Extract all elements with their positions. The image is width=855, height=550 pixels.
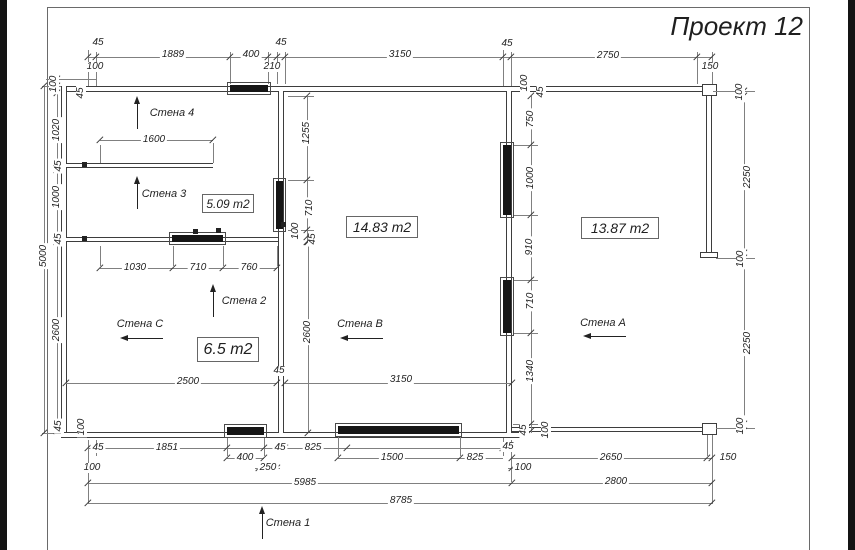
dim-label: 2500: [175, 377, 201, 387]
direction-arrow-shaft: [127, 338, 163, 339]
wall: [66, 163, 213, 168]
room-area-label: 5.09 m2: [202, 194, 254, 213]
dim-label: 45: [90, 443, 105, 453]
dim-line: [100, 246, 101, 266]
dim-line: [66, 383, 277, 384]
dim-label: 400: [241, 50, 262, 60]
wall-direction-label: Стена C: [117, 318, 163, 330]
dim-label: 2800: [603, 477, 629, 487]
dim-label: 45: [54, 418, 64, 433]
dim-label: 100: [77, 417, 87, 438]
dim-label: 45: [308, 231, 318, 246]
dim-label: 910: [525, 237, 535, 258]
dim-label: 150: [718, 453, 739, 463]
dim-line: [307, 96, 308, 242]
corner-post: [702, 423, 717, 435]
dim-label: 100: [49, 74, 59, 95]
dim-label: 825: [465, 453, 486, 463]
dim-label: 2650: [598, 453, 624, 463]
dim-label: 8785: [388, 496, 414, 506]
dim-line: [513, 215, 538, 216]
direction-arrow-shaft: [213, 291, 214, 317]
dim-label: 2750: [595, 51, 621, 61]
joint-notch: [281, 222, 286, 227]
window-symbol: [230, 85, 268, 92]
dim-label: 3150: [388, 375, 414, 385]
dim-label: 2600: [303, 319, 313, 345]
dim-line: [513, 145, 538, 146]
dim-label: 45: [54, 231, 64, 246]
dim-label: 100: [82, 463, 103, 473]
dim-line: [338, 436, 339, 456]
wall-direction-label: Стена B: [337, 318, 383, 330]
wall-direction-label: Стена A: [580, 317, 626, 329]
dim-label: 100: [513, 463, 534, 473]
dim-label: 1889: [160, 50, 186, 60]
dim-line: [288, 96, 314, 97]
dim-label: 1851: [154, 443, 180, 453]
direction-arrow-shaft: [262, 513, 263, 539]
dim-label: 250: [258, 463, 279, 473]
corner-post: [702, 84, 717, 96]
screenshot-root: Проект 12 451889400453150452750100210150…: [0, 0, 855, 550]
dim-label: 45: [76, 85, 86, 100]
dim-line: [460, 436, 461, 456]
dim-line: [513, 280, 538, 281]
dim-line: [288, 180, 314, 181]
wall: [706, 96, 712, 258]
dim-label: 1030: [122, 263, 148, 273]
dim-line: [100, 145, 101, 163]
dim-label: 45: [536, 84, 546, 99]
dim-label: 210: [262, 62, 283, 72]
dim-line: [173, 246, 174, 266]
dim-line: [213, 143, 214, 163]
dim-label: 1340: [526, 358, 536, 384]
wall-direction-label: Стена 1: [266, 517, 311, 529]
dim-label: 100: [520, 73, 530, 94]
wall-direction-label: Стена 4: [150, 107, 195, 119]
dim-label: 100: [736, 416, 746, 437]
window-symbol: [172, 235, 223, 242]
dim-label: 45: [273, 38, 288, 48]
direction-arrow-shaft: [590, 336, 626, 337]
dim-line: [513, 333, 538, 334]
room-area-label: 13.87 m2: [581, 217, 659, 239]
dim-tick: [708, 499, 715, 506]
dim-label: 45: [499, 39, 514, 49]
direction-arrow-shaft: [347, 338, 383, 339]
dim-line: [707, 435, 708, 456]
dim-label: 710: [188, 263, 209, 273]
dim-label: 5985: [292, 478, 318, 488]
direction-arrow-shaft: [137, 183, 138, 209]
room-area-label: 14.83 m2: [346, 216, 418, 238]
dim-label: 100: [291, 221, 301, 242]
joint-notch: [216, 228, 221, 233]
dim-tick: [260, 454, 267, 461]
window-symbol: [338, 426, 459, 434]
direction-arrow-shaft: [137, 103, 138, 129]
dim-label: 750: [526, 109, 536, 130]
dim-label: 2250: [743, 330, 753, 356]
dim-label: 100: [735, 82, 745, 103]
joint-notch: [82, 162, 87, 167]
dim-label: 2250: [743, 164, 753, 190]
dim-label: 45: [90, 38, 105, 48]
wall-direction-label: Стена 2: [222, 295, 267, 307]
dim-label: 825: [303, 443, 324, 453]
dim-label: 710: [305, 198, 315, 219]
wall-direction-label: Стена 3: [142, 188, 187, 200]
dim-label: 5000: [39, 243, 49, 269]
wall: [61, 86, 712, 92]
dim-label: 45: [519, 422, 529, 437]
dim-label: 100: [85, 62, 106, 72]
window-symbol: [227, 427, 264, 435]
window-symbol: [503, 145, 511, 215]
window-symbol: [503, 280, 511, 333]
dim-label: 1000: [52, 184, 62, 210]
dim-label: 1000: [526, 165, 536, 191]
dim-label: 1255: [302, 120, 312, 146]
dim-label: 45: [271, 366, 286, 376]
dim-label: 100: [736, 249, 746, 270]
floor-plan: 4518894004531504527501002101501004510204…: [0, 0, 855, 550]
dim-label: 400: [235, 453, 256, 463]
dim-label: 1500: [379, 453, 405, 463]
dim-line: [88, 448, 512, 449]
dim-label: 3150: [387, 50, 413, 60]
dim-line: [277, 246, 278, 266]
joint-notch: [82, 236, 87, 241]
dim-label: 760: [239, 263, 260, 273]
dim-label: 1600: [141, 135, 167, 145]
dim-line: [712, 435, 713, 504]
room-area-label: 6.5 m2: [197, 337, 259, 362]
dim-label: 1020: [52, 117, 62, 143]
dim-label: 710: [526, 291, 536, 312]
dim-label: 150: [700, 62, 721, 72]
dim-label: 2600: [52, 317, 62, 343]
dim-label: 45: [54, 158, 64, 173]
dim-line: [223, 246, 224, 266]
joint-notch: [193, 229, 198, 234]
dim-label: 45: [500, 442, 515, 452]
dim-label: 100: [541, 420, 551, 441]
dim-label: 45: [272, 443, 287, 453]
